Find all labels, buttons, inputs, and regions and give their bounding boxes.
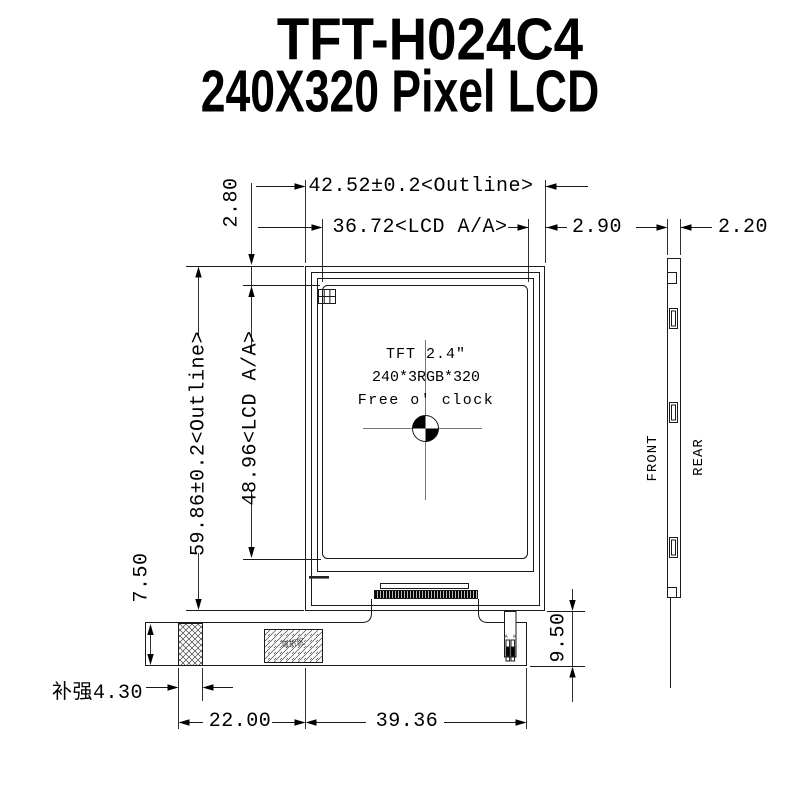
drawing-title-line2: 240X320 Pixel LCD	[64, 62, 736, 121]
dim-fpc-left: 22.00	[205, 710, 275, 733]
dimension-arrowheads	[147, 183, 691, 725]
screen-size-text: TFT 2.4″	[348, 343, 504, 366]
contact-bar	[375, 591, 478, 599]
dim-side-thickness: 2.20	[714, 216, 772, 239]
side-tabs	[670, 309, 678, 558]
lcd-spec-drawing: TFT-H024C4 240X320 Pixel LCD 42.52±0.2<O…	[0, 0, 800, 800]
datum-quadrant	[426, 429, 439, 442]
dim-outline-width: 42.52±0.2<Outline>	[300, 175, 542, 198]
screen-clock-text: Free o' clock	[348, 389, 504, 412]
side-view-rear-label: REAR	[691, 422, 707, 492]
dim-fpc-band-height: 7.50	[131, 549, 154, 607]
backlight-pins-label: A K	[501, 633, 521, 640]
stiffener	[179, 624, 203, 666]
fpc-outline	[146, 599, 527, 666]
alignment-mark	[319, 290, 336, 304]
screen-resolution-text: 240*3RGB*320	[348, 366, 504, 389]
dim-aa-right-gap: 2.90	[568, 216, 626, 239]
contact-pad	[309, 576, 329, 579]
dim-aa-width: 36.72<LCD A/A>	[332, 216, 508, 239]
dim-outline-height: 59.86±0.2<Outline>	[188, 329, 211, 559]
led-pin	[511, 647, 515, 656]
dim-fpc-drop: 9.50	[548, 609, 571, 667]
dim-top-gap: 2.80	[221, 173, 244, 233]
dim-aa-height: 48.96<LCD A/A>	[240, 334, 263, 506]
datum-quadrant	[413, 416, 426, 429]
screen-spec-label: TFT 2.4″ 240*3RGB*320 Free o' clock	[348, 343, 504, 412]
side-view-front-label: FRONT	[645, 423, 661, 493]
led-pin	[506, 647, 510, 656]
dimension-lines	[146, 180, 712, 729]
dim-stiffener: 补强4.30	[52, 675, 142, 705]
connector-slot	[381, 584, 469, 589]
dim-fpc-right: 39.36	[369, 710, 445, 733]
side-view	[668, 259, 681, 689]
